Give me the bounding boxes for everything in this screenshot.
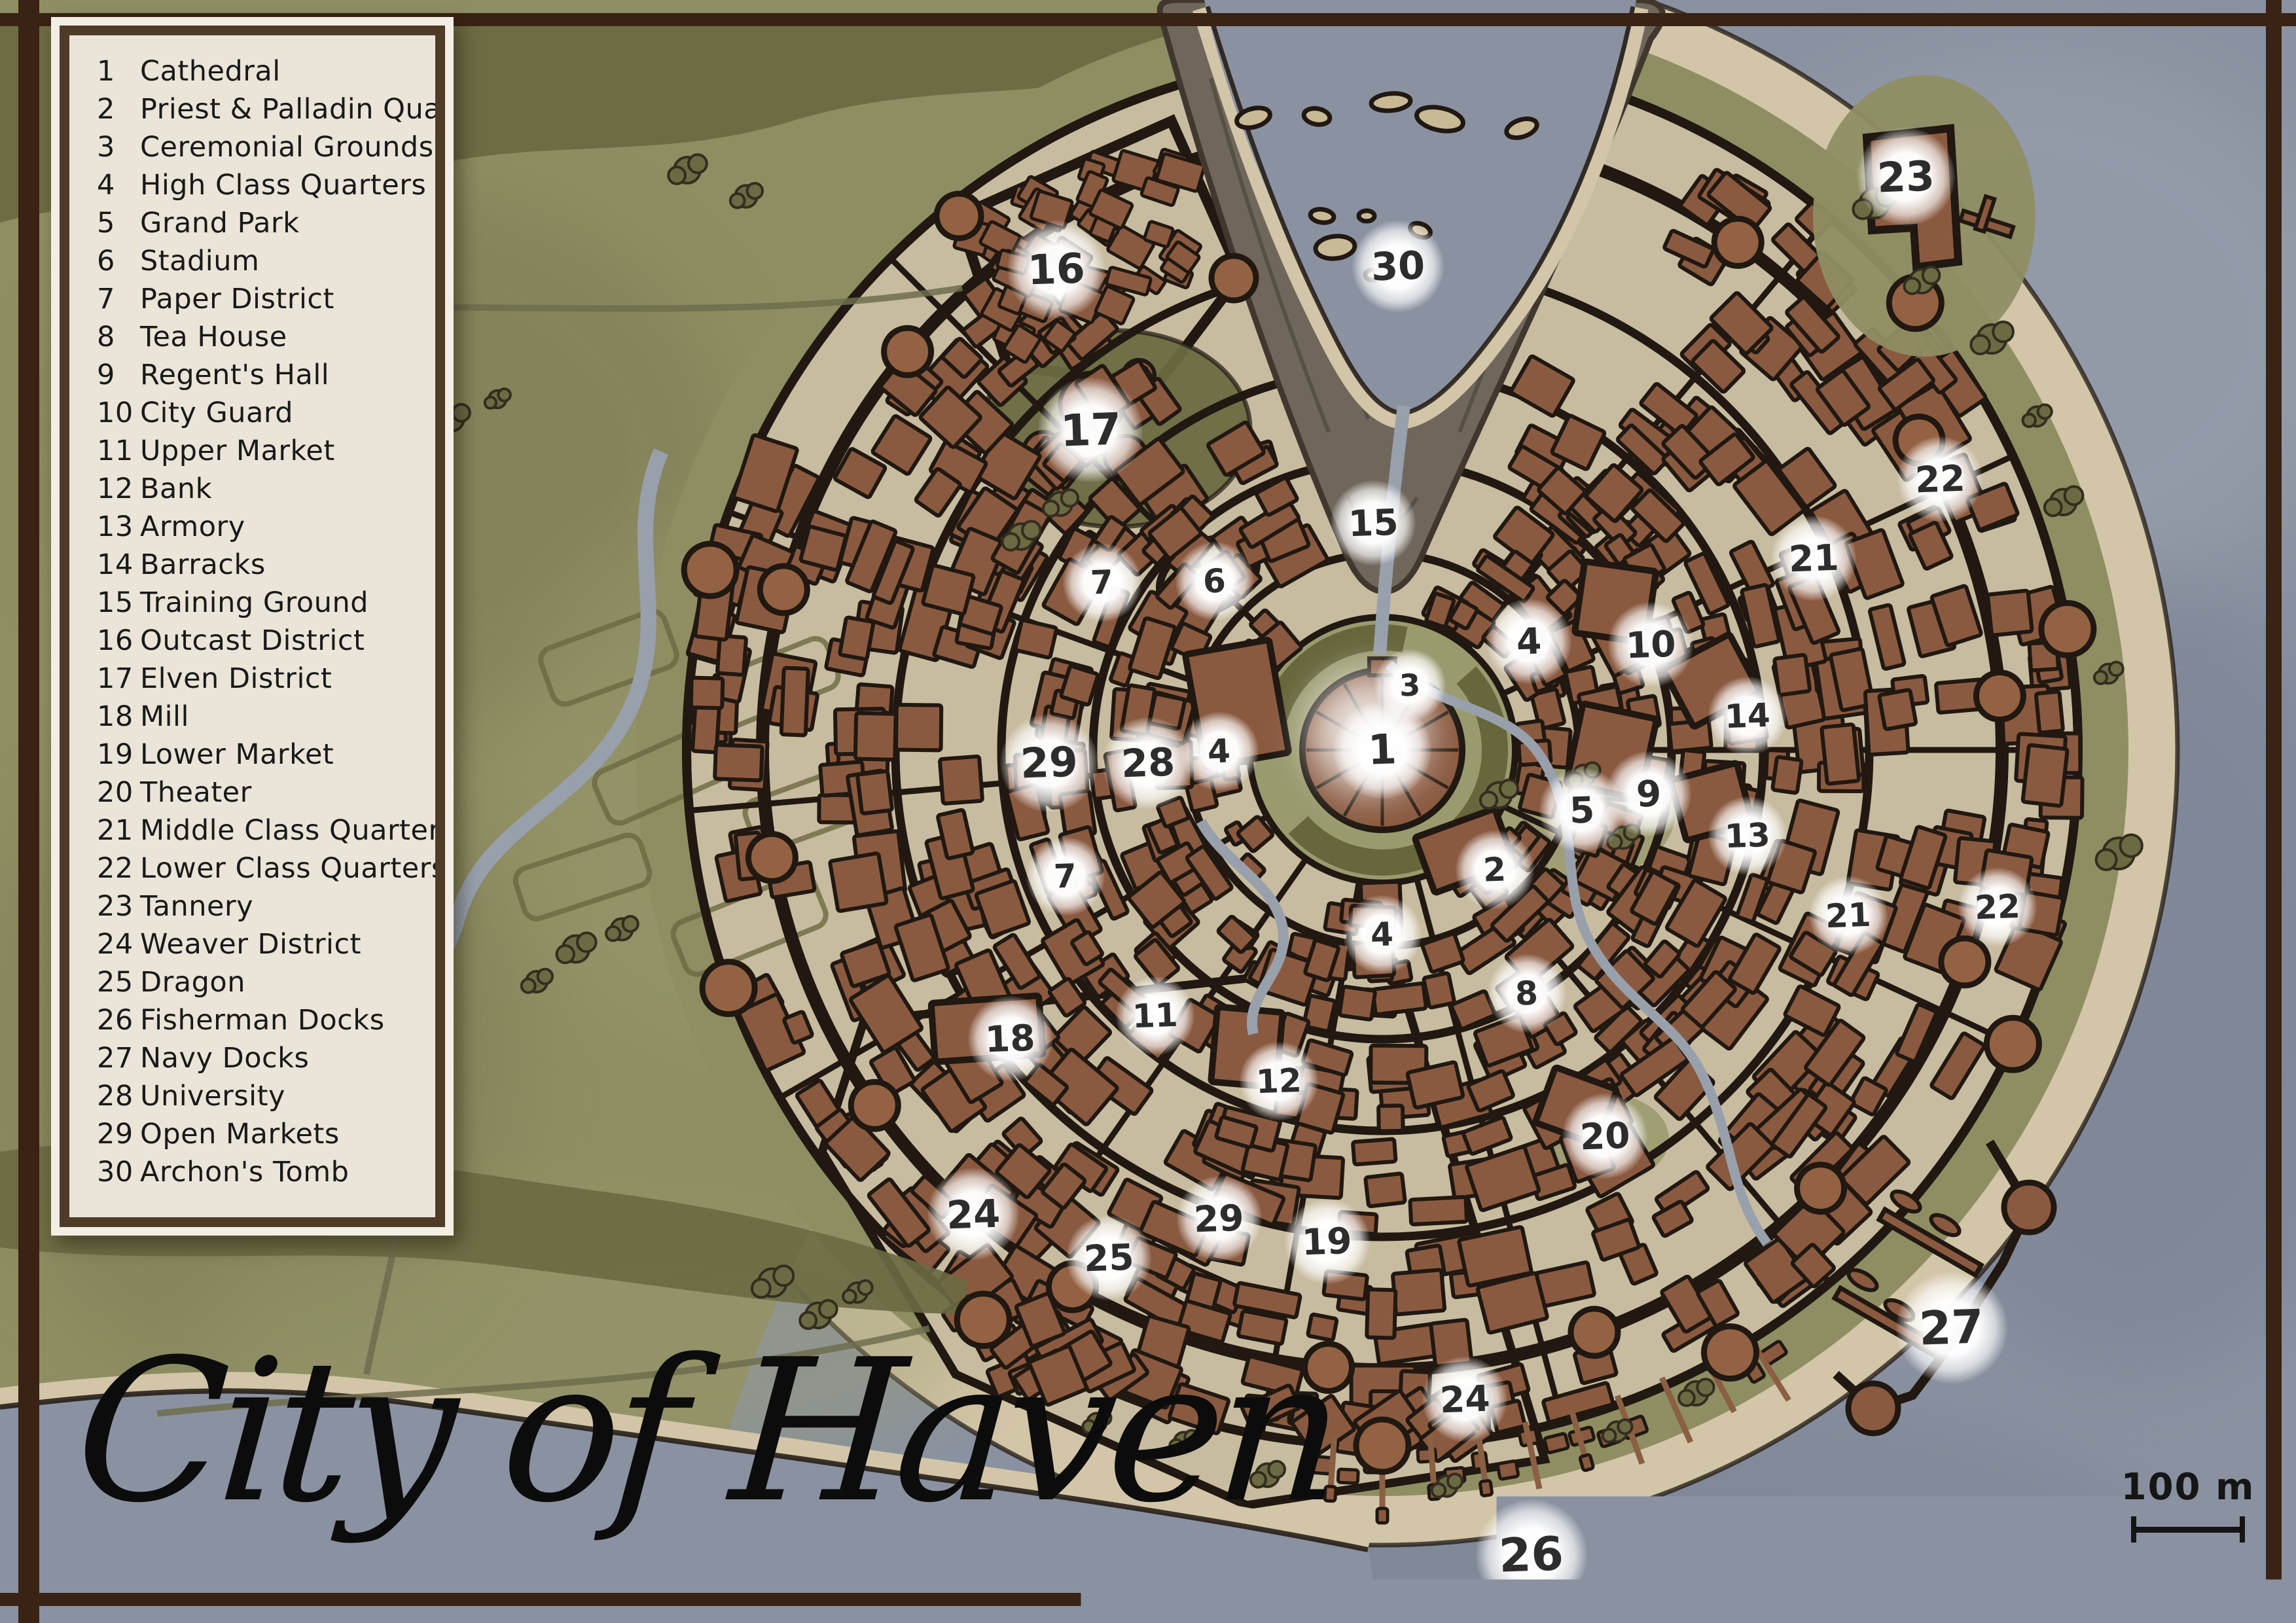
map-marker-4: 4 [1180, 712, 1259, 791]
legend-item-number: 9 [92, 356, 140, 394]
legend-item-label: Paper District [140, 280, 426, 318]
map-marker-21: 21 [1809, 876, 1888, 955]
legend-item-label: Priest & Palladin Quarters [140, 90, 445, 128]
legend-item-15: 15Training Ground [92, 584, 426, 622]
legend-item-number: 18 [92, 698, 140, 736]
map-marker-14: 14 [1708, 677, 1787, 755]
map-marker-17: 17 [1038, 378, 1143, 482]
map-marker-29: 29 [1177, 1176, 1262, 1261]
legend-item-label: Elven District [140, 660, 426, 698]
map-marker-2: 2 [1456, 830, 1534, 909]
legend-item-11: 11Upper Market [92, 432, 426, 470]
map-marker-15: 15 [1331, 480, 1416, 565]
map-marker-6: 6 [1175, 542, 1254, 620]
legend-item-21: 21Middle Class Quarters [92, 811, 426, 849]
legend-item-28: 28University [92, 1077, 426, 1115]
legend-item-7: 7Paper District [92, 280, 426, 318]
map-marker-30: 30 [1352, 221, 1444, 312]
legend-item-number: 27 [92, 1039, 140, 1077]
map-marker-12: 12 [1240, 1042, 1318, 1120]
legend-item-8: 8Tea House [92, 318, 426, 356]
legend-item-number: 25 [92, 963, 140, 1001]
legend-item-number: 6 [92, 242, 140, 280]
legend-item-label: High Class Quarters [140, 166, 426, 204]
legend-item-number: 12 [92, 470, 140, 508]
map-marker-20: 20 [1562, 1094, 1647, 1179]
map-marker-29: 29 [1000, 714, 1098, 812]
scale-label: 100 m [2119, 1466, 2257, 1508]
map-marker-11: 11 [1116, 976, 1194, 1055]
legend-item-number: 29 [92, 1115, 140, 1153]
map-marker-4: 4 [1343, 895, 1422, 974]
legend-item-label: Open Markets [140, 1115, 426, 1153]
legend-item-number: 19 [92, 736, 140, 774]
map-marker-22: 22 [1958, 868, 2037, 946]
legend-item-number: 22 [92, 849, 140, 887]
legend-item-label: Lower Class Quarters [140, 849, 445, 887]
legend-item-number: 16 [92, 622, 140, 660]
map-marker-18: 18 [968, 996, 1053, 1081]
legend-item-label: Weaver District [140, 925, 426, 963]
legend-item-27: 27Navy Docks [92, 1039, 426, 1077]
map-marker-22: 22 [1897, 437, 1982, 522]
map-marker-27: 27 [1896, 1272, 2007, 1383]
legend-item-number: 17 [92, 660, 140, 698]
map-marker-28: 28 [1102, 717, 1194, 809]
scale-bar: 100 m [2119, 1466, 2257, 1543]
map-marker-10: 10 [1608, 602, 1693, 687]
map-title: City of Haven [71, 1334, 1343, 1530]
legend-item-number: 10 [92, 394, 140, 432]
legend-item-label: Cathedral [140, 52, 426, 90]
legend-frame: 1Cathedral2Priest & Palladin Quarters3Ce… [60, 26, 445, 1227]
frame-border-right [2266, 0, 2282, 1623]
legend-item-number: 24 [92, 925, 140, 963]
legend-item-number: 23 [92, 887, 140, 925]
map-marker-7: 7 [1026, 837, 1105, 916]
legend-item-label: Outcast District [140, 622, 426, 660]
legend-item-29: 29Open Markets [92, 1115, 426, 1153]
map-marker-24: 24 [1422, 1357, 1507, 1442]
legend-item-label: Mill [140, 698, 426, 736]
legend-item-label: Dragon [140, 963, 426, 1001]
legend-item-label: Stadium [140, 242, 426, 280]
legend-item-number: 20 [92, 774, 140, 811]
legend-item-6: 6Stadium [92, 242, 426, 280]
legend-item-14: 14Barracks [92, 546, 426, 584]
legend-item-label: Training Ground [140, 584, 426, 622]
legend-item-label: Regent's Hall [140, 356, 426, 394]
legend-item-number: 2 [92, 90, 140, 128]
legend-item-label: Ceremonial Grounds [140, 128, 434, 166]
scale-line-icon [2131, 1516, 2245, 1543]
legend-item-number: 1 [92, 52, 140, 90]
map-marker-7: 7 [1063, 543, 1141, 622]
legend-item-number: 11 [92, 432, 140, 470]
legend-item-5: 5Grand Park [92, 204, 426, 242]
legend-item-label: Archon's Tomb [140, 1153, 426, 1191]
legend-item-12: 12Bank [92, 470, 426, 508]
legend-item-number: 26 [92, 1001, 140, 1039]
legend-item-number: 28 [92, 1077, 140, 1115]
legend-item-number: 13 [92, 508, 140, 546]
legend-item-26: 26Fisherman Docks [92, 1001, 426, 1039]
legend-item-30: 30Archon's Tomb [92, 1153, 426, 1191]
legend-item-label: Upper Market [140, 432, 426, 470]
legend-item-22: 22Lower Class Quarters [92, 849, 426, 887]
map-marker-4: 4 [1486, 599, 1571, 684]
legend-item-number: 4 [92, 166, 140, 204]
legend-item-23: 23Tannery [92, 887, 426, 925]
legend-item-13: 13Armory [92, 508, 426, 546]
legend-item-label: Lower Market [140, 736, 426, 774]
legend-item-19: 19Lower Market [92, 736, 426, 774]
legend-item-label: Barracks [140, 546, 426, 584]
legend-item-label: Armory [140, 508, 426, 546]
legend-item-number: 5 [92, 204, 140, 242]
frame-border-left [18, 0, 39, 1623]
legend-item-label: University [140, 1077, 426, 1115]
legend-item-label: Navy Docks [140, 1039, 426, 1077]
legend-item-24: 24Weaver District [92, 925, 426, 963]
map-marker-13: 13 [1708, 796, 1787, 875]
map-marker-23: 23 [1857, 128, 1955, 226]
legend-list: 1Cathedral2Priest & Palladin Quarters3Ce… [92, 52, 426, 1191]
map-marker-21: 21 [1771, 516, 1856, 601]
legend-item-1: 1Cathedral [92, 52, 426, 90]
legend-item-2: 2Priest & Palladin Quarters [92, 90, 426, 128]
legend-item-number: 3 [92, 128, 140, 166]
legend-item-label: Grand Park [140, 204, 426, 242]
frame-border-bottom [0, 1593, 2296, 1606]
legend-item-number: 14 [92, 546, 140, 584]
map-canvas: 1630231722152176410314129284591322122748… [0, 0, 2296, 1623]
legend-item-10: 10City Guard [92, 394, 426, 432]
legend-item-label: City Guard [140, 394, 426, 432]
map-marker-8: 8 [1488, 954, 1566, 1033]
legend-item-label: Tannery [140, 887, 426, 925]
legend-item-number: 15 [92, 584, 140, 622]
legend-panel: 1Cathedral2Priest & Palladin Quarters3Ce… [51, 17, 454, 1236]
legend-item-label: Bank [140, 470, 426, 508]
legend-item-number: 7 [92, 280, 140, 318]
legend-item-label: Tea House [140, 318, 426, 356]
legend-item-17: 17Elven District [92, 660, 426, 698]
legend-item-number: 30 [92, 1153, 140, 1191]
legend-item-label: Theater [140, 774, 426, 811]
legend-item-16: 16Outcast District [92, 622, 426, 660]
map-marker-25: 25 [1066, 1215, 1151, 1300]
map-marker-19: 19 [1285, 1199, 1370, 1284]
legend-item-label: Middle Class Quarters [140, 811, 445, 849]
map-marker-1: 1 [1333, 701, 1431, 799]
map-marker-16: 16 [1007, 221, 1105, 319]
legend-item-3: 3Ceremonial Grounds [92, 128, 426, 166]
legend-item-4: 4High Class Quarters [92, 166, 426, 204]
legend-item-25: 25Dragon [92, 963, 426, 1001]
legend-item-9: 9Regent's Hall [92, 356, 426, 394]
map-marker-24: 24 [927, 1168, 1019, 1260]
legend-item-18: 18Mill [92, 698, 426, 736]
legend-item-20: 20Theater [92, 774, 426, 811]
legend-item-label: Fisherman Docks [140, 1001, 426, 1039]
legend-item-number: 8 [92, 318, 140, 356]
legend-item-number: 21 [92, 811, 140, 849]
map-marker-9: 9 [1606, 751, 1691, 836]
